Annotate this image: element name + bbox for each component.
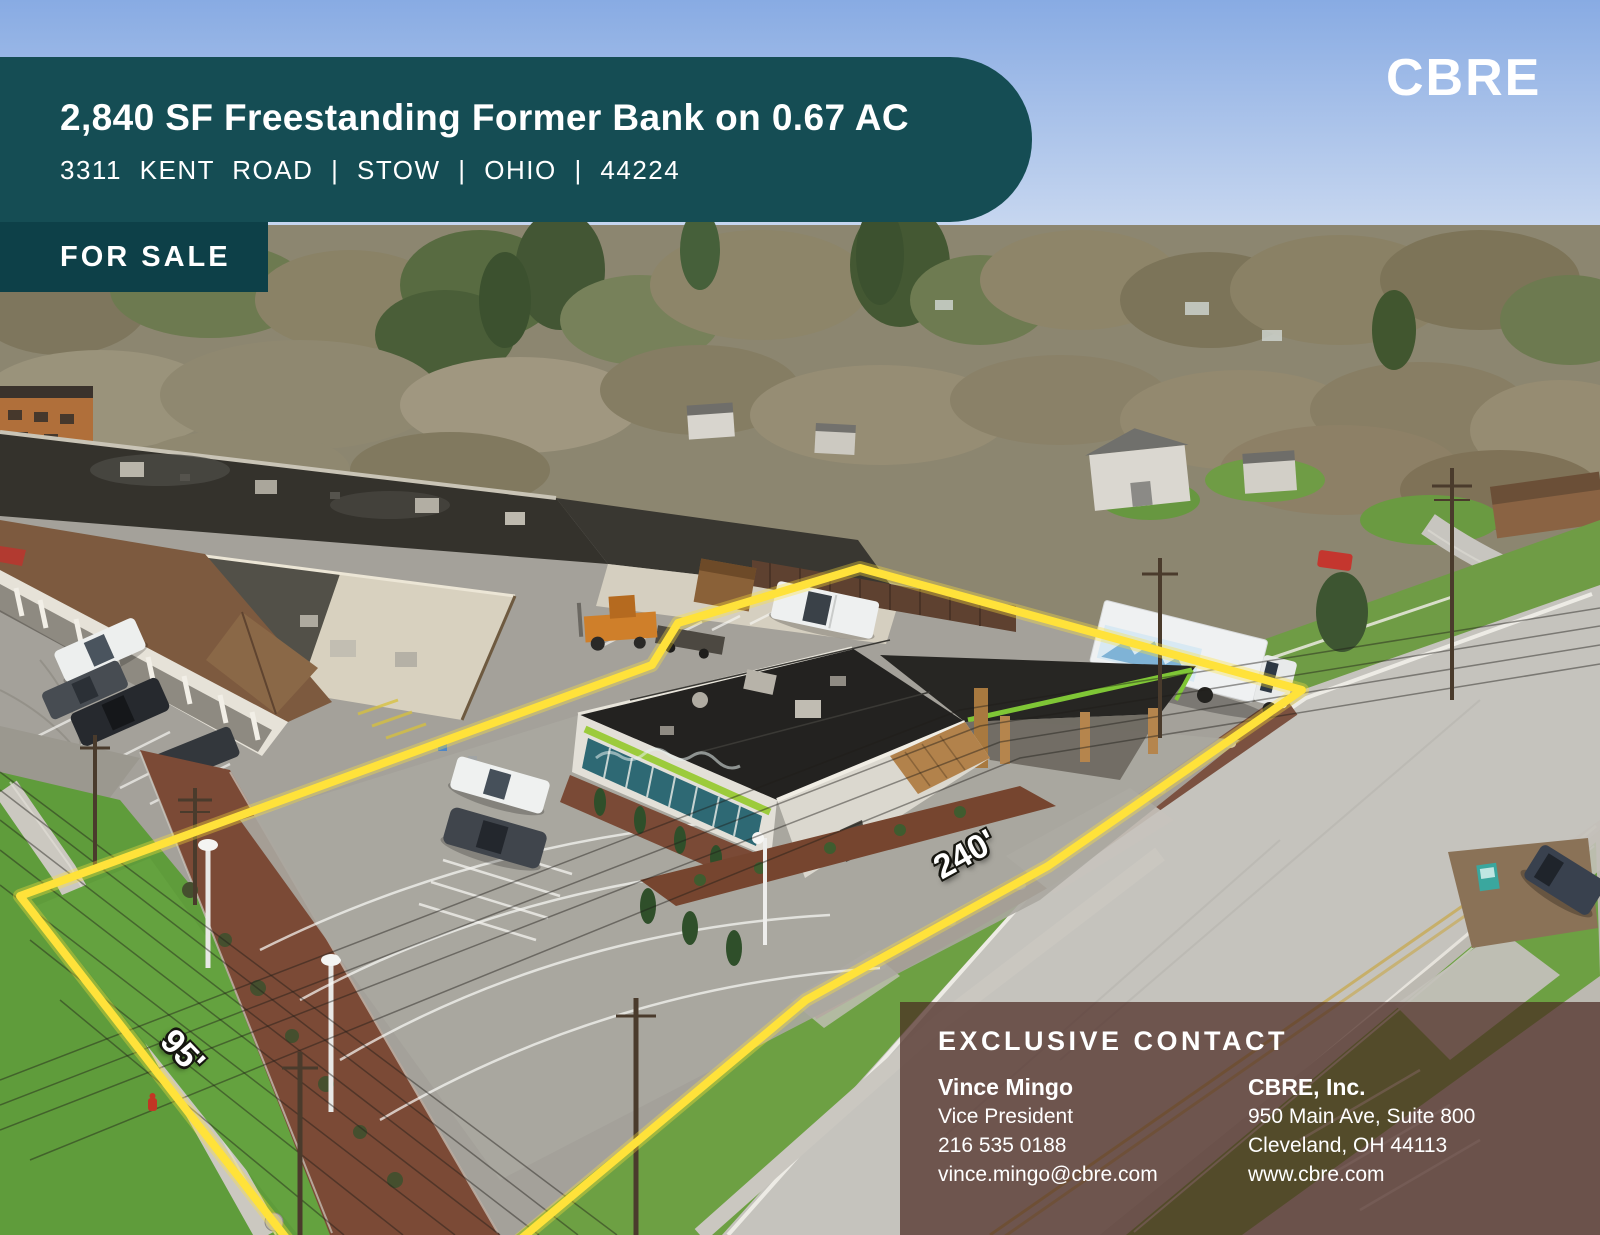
agent-name: Vince Mingo [938, 1073, 1248, 1102]
page-title: 2,840 SF Freestanding Former Bank on 0.6… [60, 97, 1032, 139]
cbre-logo: CBRE [1386, 48, 1541, 108]
flyer-root: 2,840 SF Freestanding Former Bank on 0.6… [0, 0, 1600, 1235]
agent-info: Vince Mingo Vice President 216 535 0188 … [938, 1073, 1248, 1189]
company-address-line2: Cleveland, OH 44113 [1248, 1131, 1475, 1160]
header-banner: 2,840 SF Freestanding Former Bank on 0.6… [0, 57, 1032, 222]
company-info: CBRE, Inc. 950 Main Ave, Suite 800 Cleve… [1248, 1073, 1475, 1189]
agent-title: Vice President [938, 1102, 1248, 1131]
property-address: 3311 KENT ROAD | STOW | OHIO | 44224 [60, 155, 1032, 186]
company-name: CBRE, Inc. [1248, 1073, 1475, 1102]
company-website: www.cbre.com [1248, 1160, 1475, 1189]
for-sale-badge: FOR SALE [0, 222, 268, 292]
contact-heading: EXCLUSIVE CONTACT [938, 1026, 1600, 1057]
company-address-line1: 950 Main Ave, Suite 800 [1248, 1102, 1475, 1131]
agent-email: vince.mingo@cbre.com [938, 1160, 1248, 1189]
agent-phone: 216 535 0188 [938, 1131, 1248, 1160]
contact-panel: EXCLUSIVE CONTACT Vince Mingo Vice Presi… [900, 1002, 1600, 1235]
